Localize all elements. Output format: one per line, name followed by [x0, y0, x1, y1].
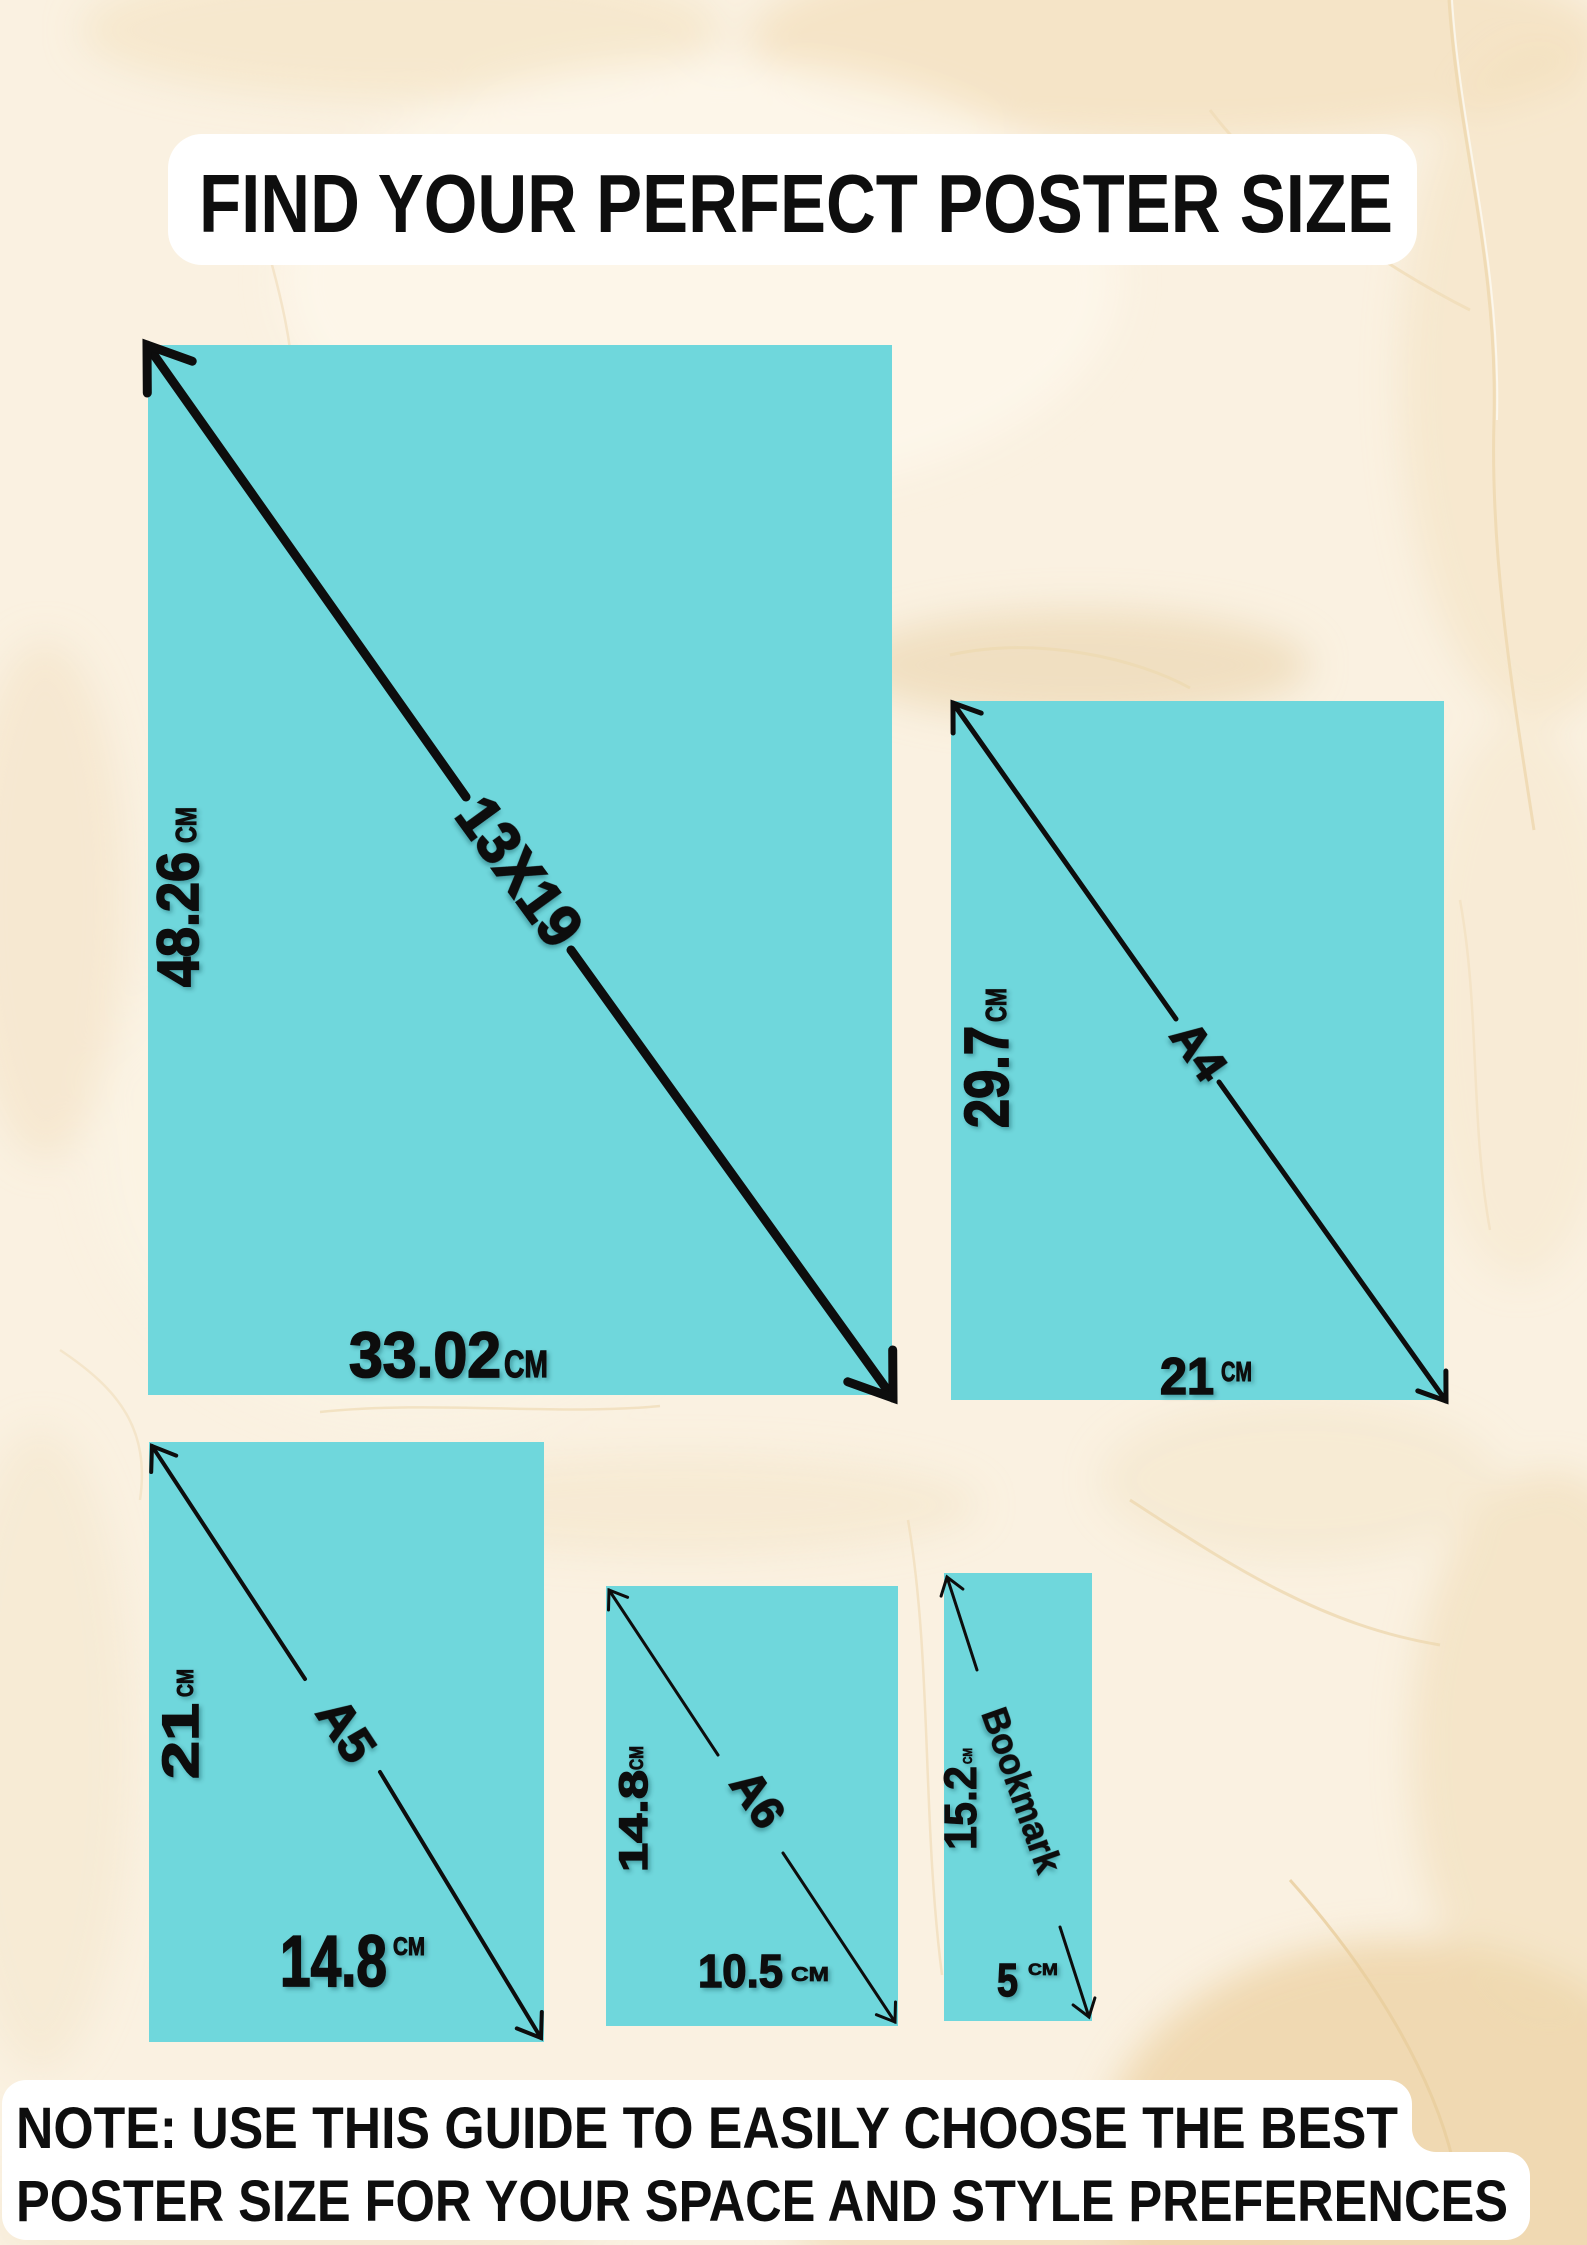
svg-text:CM: CM	[791, 1964, 829, 1986]
svg-text:14.8: 14.8	[280, 1922, 387, 2002]
svg-text:CM: CM	[172, 1669, 198, 1697]
svg-text:CM: CM	[171, 807, 203, 843]
svg-text:POSTER SIZE FOR YOUR SPACE AND: POSTER SIZE FOR YOUR SPACE AND STYLE PRE…	[16, 2169, 1508, 2234]
svg-text:14.8: 14.8	[612, 1770, 656, 1872]
svg-text:CM: CM	[627, 1746, 648, 1770]
svg-text:CM: CM	[1028, 1960, 1058, 1979]
svg-text:15.2: 15.2	[935, 1766, 986, 1850]
svg-text:CM: CM	[1221, 1356, 1252, 1387]
svg-text:21: 21	[152, 1703, 209, 1779]
svg-text:CM: CM	[981, 988, 1013, 1022]
svg-text:CM: CM	[960, 1748, 975, 1764]
svg-text:NOTE: USE THIS GUIDE TO EASILY: NOTE: USE THIS GUIDE TO EASILY CHOOSE TH…	[16, 2096, 1398, 2161]
svg-text:CM: CM	[393, 1933, 425, 1961]
svg-text:10.5: 10.5	[698, 1945, 783, 1997]
svg-text:FIND YOUR PERFECT POSTER SIZE: FIND YOUR PERFECT POSTER SIZE	[199, 157, 1393, 250]
svg-text:CM: CM	[504, 1344, 548, 1386]
svg-text:29.7: 29.7	[953, 1026, 1022, 1128]
svg-text:33.02: 33.02	[349, 1319, 501, 1391]
svg-text:5: 5	[997, 1954, 1018, 2006]
svg-text:48.26: 48.26	[146, 852, 211, 987]
svg-text:21: 21	[1160, 1348, 1214, 1406]
